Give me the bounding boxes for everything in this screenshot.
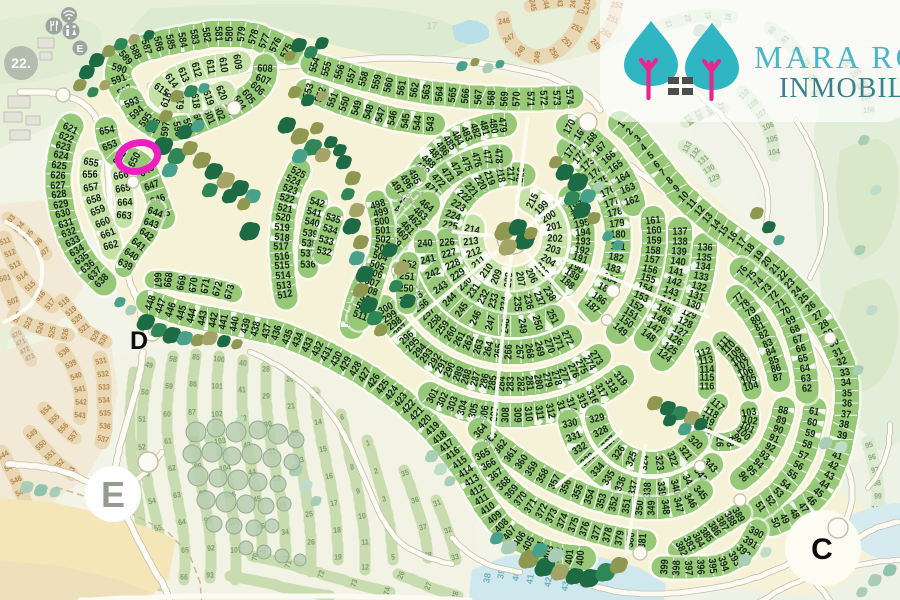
svg-text:MARA RO: MARA RO (754, 39, 900, 75)
svg-text:610: 610 (216, 57, 230, 74)
svg-text:543: 543 (425, 116, 438, 132)
svg-text:87: 87 (188, 407, 196, 417)
svg-text:41: 41 (524, 573, 536, 585)
svg-text:17: 17 (329, 498, 338, 509)
svg-text:246: 246 (498, 15, 511, 26)
svg-text:564: 564 (433, 85, 446, 102)
svg-text:99: 99 (874, 491, 882, 501)
svg-text:400: 400 (575, 550, 588, 566)
svg-text:664: 664 (117, 197, 133, 210)
svg-text:573: 573 (550, 90, 563, 106)
svg-text:533: 533 (98, 382, 110, 392)
svg-text:309: 309 (511, 407, 523, 423)
svg-text:25: 25 (305, 509, 314, 519)
svg-text:21: 21 (287, 401, 296, 411)
svg-text:348: 348 (658, 499, 671, 516)
svg-text:51: 51 (138, 414, 146, 424)
svg-text:397: 397 (682, 560, 695, 576)
svg-text:308: 308 (500, 407, 512, 423)
svg-text:544: 544 (411, 114, 425, 131)
svg-text:85: 85 (192, 352, 201, 362)
svg-text:104: 104 (768, 146, 781, 157)
svg-text:19: 19 (334, 552, 342, 562)
svg-text:242: 242 (568, 0, 579, 8)
svg-text:241: 241 (581, 0, 592, 10)
svg-text:101: 101 (211, 381, 223, 391)
svg-text:580: 580 (224, 26, 236, 42)
svg-text:536: 536 (99, 421, 111, 432)
svg-text:581: 581 (212, 26, 225, 42)
svg-text:18: 18 (333, 525, 341, 535)
svg-text:534: 534 (98, 395, 111, 405)
svg-text:571: 571 (524, 91, 536, 107)
svg-text:532: 532 (97, 369, 110, 380)
svg-text:582: 582 (199, 27, 213, 44)
svg-text:11: 11 (361, 537, 369, 547)
svg-text:86: 86 (189, 379, 197, 389)
svg-text:E: E (101, 474, 125, 515)
svg-text:243: 243 (555, 0, 565, 7)
svg-text:38: 38 (481, 572, 493, 584)
svg-text:D: D (130, 327, 148, 355)
svg-text:100: 100 (213, 354, 225, 365)
svg-text:240: 240 (417, 238, 433, 251)
svg-text:668: 668 (162, 271, 176, 288)
svg-text:563: 563 (420, 83, 434, 100)
svg-text:249: 249 (515, 318, 528, 335)
svg-text:63: 63 (172, 490, 181, 501)
svg-text:543: 543 (74, 410, 86, 421)
svg-text:66: 66 (180, 572, 188, 582)
svg-text:12: 12 (361, 562, 369, 572)
svg-text:608: 608 (257, 63, 273, 75)
svg-text:52: 52 (138, 442, 147, 452)
svg-text:102: 102 (211, 409, 223, 419)
svg-text:399: 399 (659, 559, 672, 575)
svg-text:17: 17 (426, 21, 438, 32)
svg-text:116: 116 (700, 381, 715, 393)
svg-text:62: 62 (802, 383, 813, 395)
svg-text:5: 5 (391, 552, 396, 562)
svg-text:59: 59 (165, 381, 174, 391)
svg-text:249: 249 (532, 51, 543, 63)
svg-text:478: 478 (492, 148, 505, 164)
svg-text:565: 565 (446, 86, 459, 103)
svg-text:40: 40 (239, 358, 247, 368)
svg-text:62: 62 (167, 463, 176, 474)
svg-text:349: 349 (646, 500, 658, 516)
svg-text:535: 535 (99, 408, 111, 418)
svg-text:568: 568 (486, 90, 499, 106)
svg-text:22.: 22. (11, 55, 30, 71)
svg-text:213: 213 (463, 235, 480, 248)
svg-text:26: 26 (307, 537, 315, 547)
svg-text:58: 58 (168, 354, 177, 365)
svg-text:34: 34 (281, 527, 290, 537)
svg-text:656: 656 (82, 169, 98, 181)
svg-text:60: 60 (163, 409, 171, 419)
svg-text:50: 50 (141, 387, 150, 398)
svg-text:41: 41 (238, 385, 246, 395)
svg-text:10: 10 (358, 511, 367, 522)
svg-text:INMOBIL: INMOBIL (779, 73, 900, 104)
svg-text:92: 92 (207, 543, 215, 553)
svg-text:396: 396 (694, 559, 706, 575)
svg-text:E: E (77, 44, 84, 55)
svg-text:61: 61 (164, 436, 173, 446)
svg-text:663: 663 (116, 209, 133, 222)
svg-text:569: 569 (499, 91, 512, 107)
svg-text:28: 28 (262, 364, 270, 374)
svg-text:611: 611 (203, 59, 217, 76)
svg-text:609: 609 (230, 54, 244, 71)
svg-text:542: 542 (75, 397, 87, 407)
svg-text:572: 572 (537, 90, 550, 106)
svg-text:398: 398 (671, 560, 683, 576)
svg-text:567: 567 (473, 89, 486, 105)
svg-text:574: 574 (563, 89, 576, 105)
svg-text:395: 395 (705, 558, 718, 575)
svg-text:93: 93 (206, 570, 214, 580)
svg-text:29: 29 (262, 391, 270, 401)
svg-text:323: 323 (652, 455, 666, 472)
svg-text:566: 566 (459, 87, 472, 104)
svg-text:103: 103 (741, 406, 758, 420)
svg-text:570: 570 (511, 91, 523, 107)
svg-text:C: C (811, 533, 833, 566)
